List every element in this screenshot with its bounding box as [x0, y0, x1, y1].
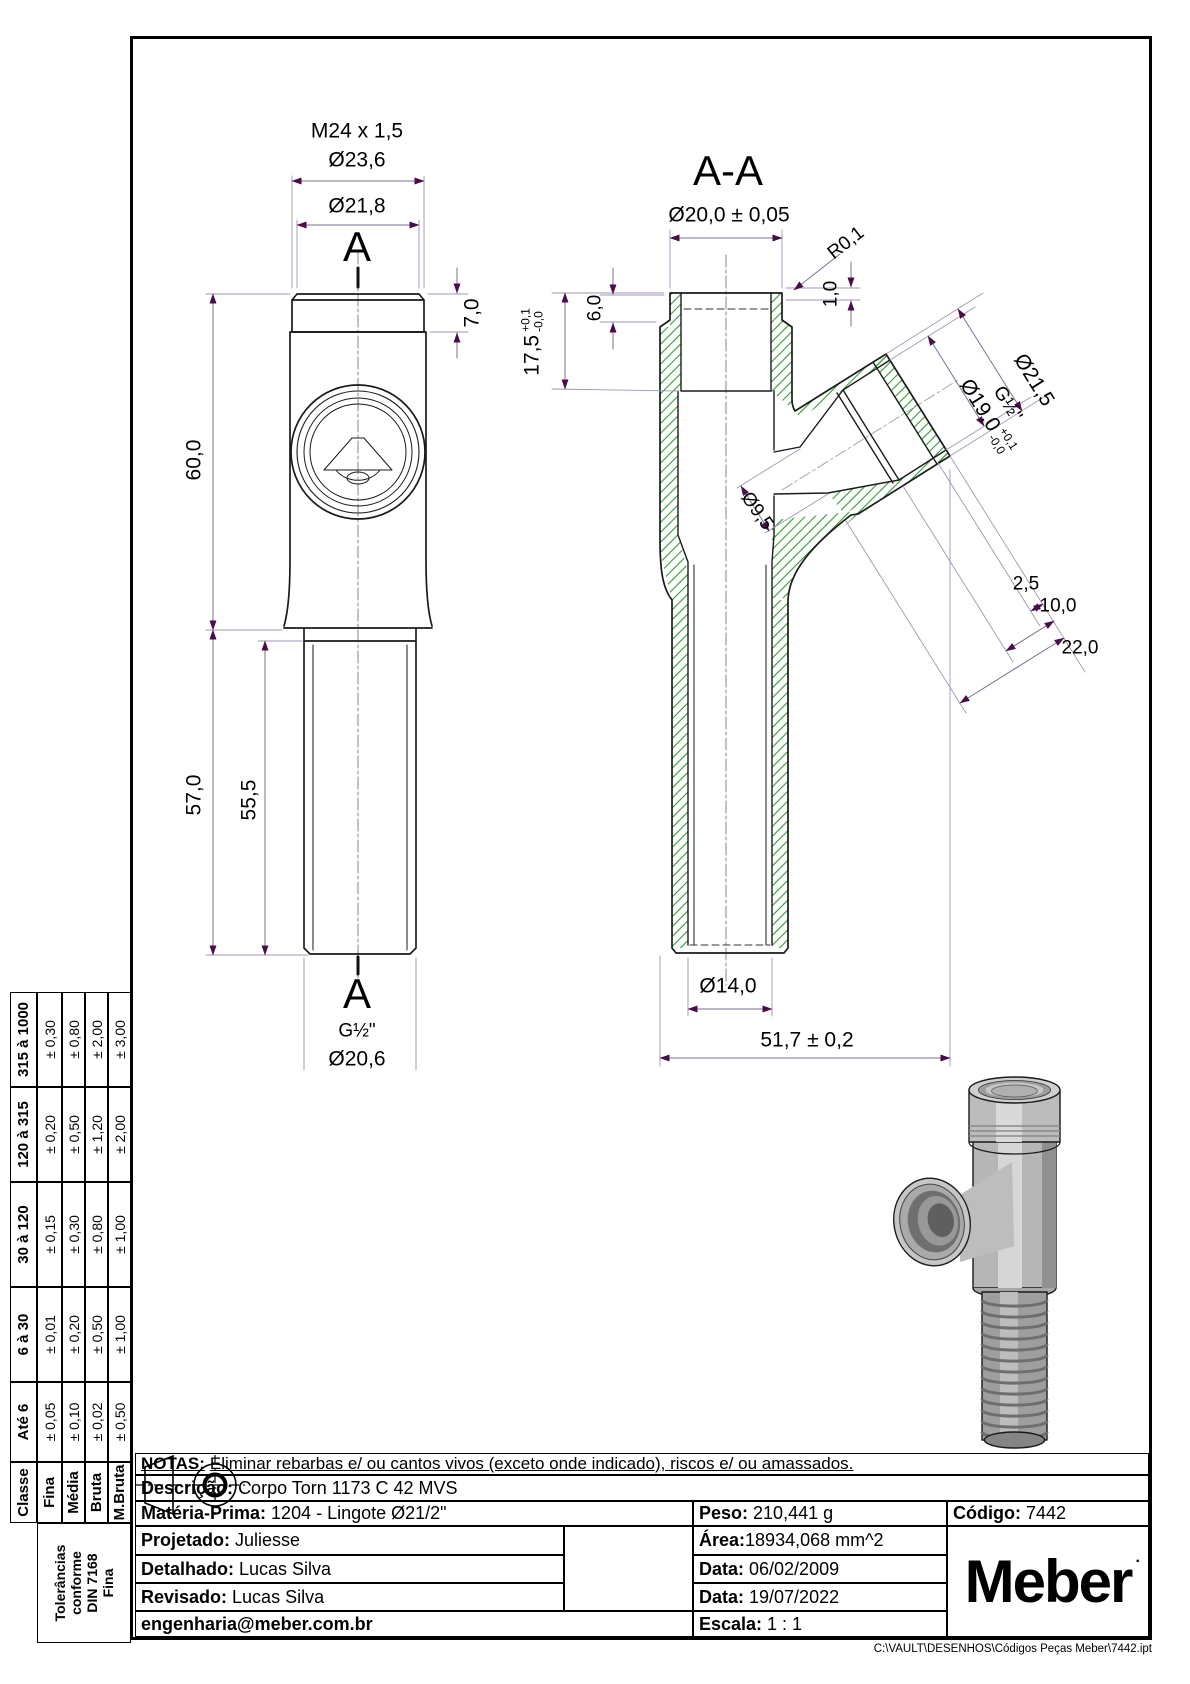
title-block: NOTAS:Eliminar rebarbas e/ ou cantos viv…	[135, 1453, 1149, 1637]
peso-cell: Peso:210,441 g	[693, 1501, 947, 1526]
notas-row: NOTAS:Eliminar rebarbas e/ ou cantos viv…	[135, 1453, 1149, 1475]
projetado-value: Juliesse	[235, 1530, 300, 1551]
logo-cell: Meber .	[947, 1526, 1149, 1637]
dim-bore-depth: 17,5 +0,1-0,0	[519, 308, 544, 376]
tolerance-value: ± 0,20	[37, 1087, 62, 1182]
section-marker-bottom: A	[343, 973, 371, 1015]
drawing-sheet: M24 x 1,5 Ø23,6 Ø21,8 A 7,0 60,0 57,0 55…	[0, 0, 1190, 1684]
tolerance-side-note: Tolerâncias conforme DIN 7168 Fina	[37, 1523, 131, 1643]
tolerance-table: Classe Até 6 6 à 30 30 à 120 120 à 315 3…	[10, 992, 131, 1643]
dim-dia-bottom: Ø20,6	[328, 1049, 385, 1070]
projetado-cell: Projetado:Juliesse	[135, 1526, 564, 1555]
dim-thread-top: M24 x 1,5	[311, 121, 403, 142]
dim-thread-length: 55,5	[239, 780, 260, 821]
tolerance-row-label: M.Bruta	[108, 1462, 131, 1523]
detalhado-cell: Detalhado:Lucas Silva	[135, 1555, 564, 1583]
tolerance-row-label: Bruta	[85, 1462, 108, 1523]
file-path: C:\VAULT\DESENHOS\Códigos Peças Meber\74…	[600, 1643, 1152, 1655]
dim-face-ring: 2,5	[1013, 575, 1039, 594]
tolerance-header-120a315: 120 à 315	[10, 1087, 37, 1182]
codigo-label: Código:	[953, 1503, 1021, 1524]
tolerance-value: ± 1,00	[108, 1182, 131, 1287]
data1-value: 06/02/2009	[749, 1559, 839, 1580]
tolerance-value: ± 1,20	[85, 1087, 108, 1182]
descricao-value: Corpo Torn 1173 C 42 MVS	[238, 1478, 457, 1499]
tolerance-value: ± 0,01	[37, 1287, 62, 1382]
tolerance-header-30a120: 30 à 120	[10, 1182, 37, 1287]
revisado-cell: Revisado:Lucas Silva	[135, 1583, 564, 1611]
escala-value: 1 : 1	[767, 1614, 802, 1635]
materia-value: 1204 - Lingote Ø21/2"	[271, 1503, 447, 1524]
tolerance-value: ± 0,20	[62, 1287, 85, 1382]
section-marker-top: A	[343, 226, 371, 268]
dim-dia-outer: Ø23,6	[328, 150, 385, 171]
tolerance-value: ± 0,05	[37, 1382, 62, 1462]
descricao-row: Descrição:Corpo Torn 1173 C 42 MVS	[135, 1475, 1149, 1501]
area-value: 18934,068 mm^2	[745, 1530, 884, 1551]
escala-label: Escala:	[699, 1614, 762, 1635]
tolerance-value: ± 2,00	[85, 992, 108, 1087]
tolerance-header-6a30: 6 à 30	[10, 1287, 37, 1382]
email-cell: engenharia@meber.com.br	[135, 1611, 693, 1637]
tolerance-value: ± 0,15	[37, 1182, 62, 1287]
dim-branch-depth: 22,0	[1062, 639, 1099, 658]
dim-dia-inner: Ø21,8	[328, 196, 385, 217]
area-cell: Área:18934,068 mm^2	[693, 1526, 947, 1555]
tolerance-header-ate6: Até 6	[10, 1382, 37, 1462]
tolerance-value: ± 0,50	[85, 1287, 108, 1382]
section-view	[552, 230, 1085, 1066]
tolerance-header-315a1000: 315 à 1000	[10, 992, 37, 1087]
data1-cell: Data:06/02/2009	[693, 1555, 947, 1583]
dim-body-height: 60,0	[184, 440, 205, 481]
revisado-value: Lucas Silva	[232, 1587, 324, 1608]
dim-relief-depth: 6,0	[586, 295, 605, 321]
tolerance-value: ± 0,30	[62, 1182, 85, 1287]
tolerance-value: ± 3,00	[108, 992, 131, 1087]
logo-dot: .	[1136, 1549, 1138, 1567]
data2-value: 19/07/2022	[749, 1587, 839, 1608]
dim-dia-top: Ø20,0 ± 0,05	[668, 205, 789, 226]
data2-cell: Data:19/07/2022	[693, 1583, 947, 1611]
tolerance-header-classe: Classe	[10, 1462, 37, 1523]
data1-label: Data:	[699, 1559, 744, 1580]
dim-thread-bottom: G½"	[338, 1022, 375, 1041]
area-label: Área:	[699, 1530, 745, 1551]
dim-lip: 1,0	[822, 281, 841, 307]
dim-stem-bore: Ø14,0	[699, 976, 756, 997]
tolerance-value: ± 1,00	[108, 1287, 131, 1382]
tolerance-row-label: Média	[62, 1462, 85, 1523]
front-view	[206, 176, 468, 1070]
revisado-label: Revisado:	[141, 1587, 227, 1608]
section-title: A-A	[693, 150, 763, 192]
brand-logo: Meber	[965, 1547, 1132, 1616]
tolerance-value: ± 0,10	[62, 1382, 85, 1462]
dim-cap-height: 7,0	[462, 298, 483, 327]
tolerance-value: ± 0,50	[62, 1087, 85, 1182]
render-3d	[886, 1077, 1060, 1448]
detalhado-value: Lucas Silva	[239, 1559, 331, 1580]
projection-symbol-cell	[564, 1526, 693, 1611]
projetado-label: Projetado:	[141, 1530, 230, 1551]
tolerance-value: ± 2,00	[108, 1087, 131, 1182]
codigo-value: 7442	[1026, 1503, 1066, 1524]
dim-overall-length: 51,7 ± 0,2	[760, 1030, 853, 1051]
detalhado-label: Detalhado:	[141, 1559, 234, 1580]
email-value: engenharia@meber.com.br	[141, 1614, 373, 1635]
notas-text: Eliminar rebarbas e/ ou cantos vivos (ex…	[210, 1454, 854, 1474]
escala-cell: Escala:1 : 1	[693, 1611, 947, 1637]
dim-thread-depth: 10,0	[1040, 597, 1077, 616]
peso-value: 210,441 g	[753, 1503, 833, 1524]
peso-label: Peso:	[699, 1503, 748, 1524]
tolerance-value: ± 0,80	[62, 992, 85, 1087]
tolerance-value: ± 0,50	[108, 1382, 131, 1462]
tolerance-value: ± 0,30	[37, 992, 62, 1087]
tolerance-row-label: Fina	[37, 1462, 62, 1523]
data2-label: Data:	[699, 1587, 744, 1608]
tolerance-value: ± 0,02	[85, 1382, 108, 1462]
technical-drawing-canvas	[0, 0, 1190, 1684]
tolerance-table-corner	[10, 1523, 37, 1643]
codigo-cell: Código:7442	[947, 1501, 1149, 1526]
dim-stem-height: 57,0	[184, 775, 205, 816]
tolerance-value: ± 0,80	[85, 1182, 108, 1287]
